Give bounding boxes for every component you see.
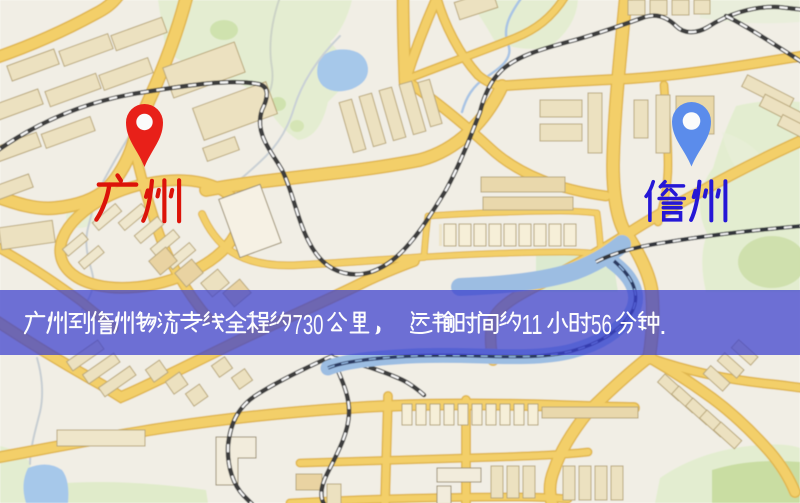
svg-text:11: 11 [522,309,543,340]
svg-text:56: 56 [591,309,612,340]
svg-text:.: . [659,309,667,340]
svg-text:730: 730 [293,309,324,340]
